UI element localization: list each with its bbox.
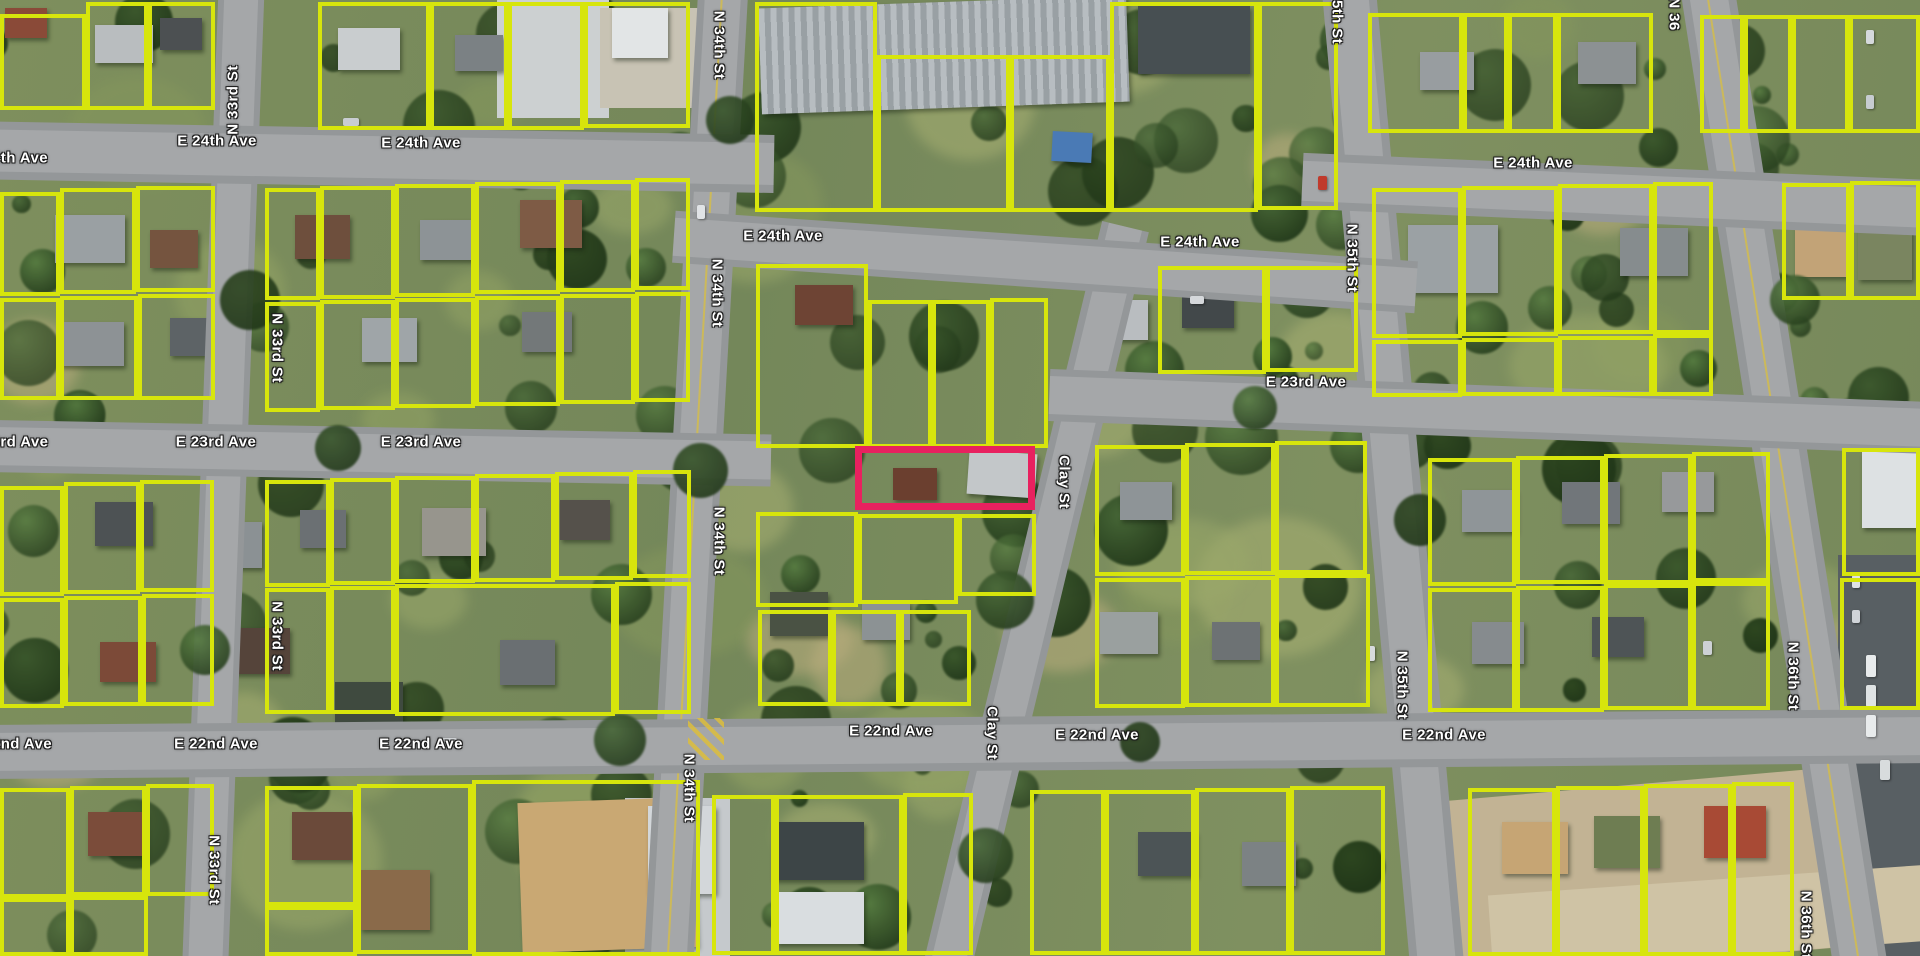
parcel-outline[interactable] [584, 2, 690, 128]
tree-canopy [1233, 386, 1277, 430]
parcel-outline[interactable] [330, 478, 395, 585]
parcel-outline[interactable] [1428, 458, 1516, 586]
parcel-outline[interactable] [1463, 13, 1508, 133]
street-label: N 34th St [711, 507, 728, 576]
street-label: N 36th St [1798, 891, 1815, 956]
parcel-outline[interactable] [560, 180, 635, 292]
street-label: 3rd Ave [0, 434, 48, 451]
parcel-outline[interactable] [1195, 788, 1290, 955]
street-label: E 24th Ave [177, 133, 257, 150]
tree-canopy [315, 425, 361, 471]
parcel-outline[interactable] [903, 793, 973, 955]
parcel-outline[interactable] [320, 186, 395, 299]
parcel-outline[interactable] [140, 480, 214, 592]
parcel-outline[interactable] [1557, 13, 1653, 133]
vehicle [697, 205, 705, 219]
parcel-outline[interactable] [1372, 188, 1462, 338]
street-label: N 34th St [711, 11, 728, 80]
parcel-outline[interactable] [1508, 13, 1557, 133]
parcel-outline[interactable] [395, 184, 475, 297]
parcel-outline[interactable] [265, 188, 320, 300]
parcel-outline[interactable] [1732, 782, 1794, 956]
parcel-outline[interactable] [1744, 15, 1792, 133]
parcel-outline[interactable] [475, 474, 555, 582]
parcel-outline[interactable] [712, 795, 775, 955]
parcel-outline[interactable] [1849, 15, 1920, 133]
parcel-outline[interactable] [1516, 456, 1604, 584]
parcel-outline[interactable] [958, 514, 1036, 596]
parcel-outline[interactable] [395, 476, 475, 583]
street-label: E 22nd Ave [379, 736, 463, 753]
parcel-outline[interactable] [265, 906, 357, 956]
parcel-outline[interactable] [475, 296, 560, 406]
parcel-outline[interactable] [932, 300, 990, 448]
parcel-outline[interactable] [1462, 186, 1558, 336]
parcel-outline[interactable] [265, 786, 357, 906]
parcel-outline[interactable] [1653, 182, 1713, 334]
street-label: E 24th Ave [1493, 155, 1573, 172]
parcel-outline[interactable] [0, 788, 70, 898]
parcel-outline[interactable] [633, 470, 691, 578]
parcel-outline[interactable] [1158, 266, 1266, 374]
parcel-outline[interactable] [1556, 786, 1644, 956]
parcel-outline[interactable] [142, 594, 214, 706]
parcel-outline[interactable] [0, 898, 70, 956]
parcel-outline[interactable] [635, 292, 690, 402]
parcel-outline[interactable] [0, 14, 86, 110]
parcel-outline[interactable] [1516, 586, 1604, 712]
parcel-outline[interactable] [1428, 588, 1516, 712]
selected-parcel-outline[interactable] [855, 446, 1035, 510]
parcel-outline[interactable] [60, 188, 136, 294]
parcel-outline[interactable] [1095, 578, 1185, 708]
parcel-outline[interactable] [1604, 454, 1692, 584]
parcel-outline[interactable] [1110, 2, 1258, 212]
parcel-outline[interactable] [1462, 338, 1558, 396]
street-label: N 34th St [681, 754, 698, 823]
street-label: E 24th Ave [381, 135, 461, 152]
parcel-outline[interactable] [0, 598, 64, 708]
parcel-outline[interactable] [1792, 15, 1849, 133]
parcel-outline[interactable] [615, 582, 691, 714]
parcel-outline[interactable] [1290, 786, 1385, 955]
parcel-outline[interactable] [475, 182, 560, 294]
parcel-outline[interactable] [1372, 340, 1462, 397]
parcel-outline[interactable] [64, 482, 140, 594]
parcel-outline[interactable] [1558, 184, 1653, 334]
street-label: E 23rd Ave [381, 434, 461, 451]
street-label: 5th St [1329, 0, 1346, 44]
parcel-outline[interactable] [775, 795, 903, 955]
parcel-outline[interactable] [877, 55, 1010, 212]
tree-canopy [594, 714, 646, 766]
parcel-outline[interactable] [64, 596, 142, 706]
road-surface [0, 716, 1920, 771]
parcel-outline[interactable] [146, 784, 214, 896]
parcel-outline[interactable] [0, 298, 60, 400]
parcel-outline[interactable] [1010, 55, 1110, 212]
vehicle [1866, 715, 1876, 737]
parcel-outline[interactable] [755, 2, 877, 212]
street-label: Clay St [1056, 455, 1073, 509]
street-label: N 33rd St [269, 313, 286, 382]
parcel-outline[interactable] [900, 610, 971, 706]
street-label: N 33rd St [269, 601, 286, 670]
street-label: E 22nd Ave [1402, 727, 1486, 744]
parcel-outline[interactable] [1850, 181, 1920, 300]
street-label: E 22nd Ave [849, 723, 933, 740]
parcel-outline[interactable] [1692, 582, 1770, 710]
parcel-outline[interactable] [756, 264, 868, 448]
parcel-outline[interactable] [0, 486, 64, 596]
parcel-outline[interactable] [1700, 15, 1744, 133]
parcel-outline[interactable] [70, 786, 146, 896]
parcel-outline[interactable] [1692, 452, 1770, 582]
parcel-outline[interactable] [0, 192, 60, 296]
parcel-outline[interactable] [1095, 445, 1185, 576]
parcel-outline[interactable] [395, 584, 615, 716]
parcel-outline[interactable] [1368, 13, 1463, 133]
street-label: E 24th Ave [1160, 234, 1240, 251]
street-label: E 23rd Ave [1266, 374, 1346, 391]
street-label: N 36 [1666, 0, 1683, 31]
street-label: E 22nd Ave [1055, 727, 1139, 744]
parcel-outline[interactable] [1782, 183, 1850, 300]
street-label: E 23rd Ave [176, 434, 256, 451]
parcel-outline[interactable] [832, 610, 900, 706]
parcel-outline[interactable] [758, 610, 832, 706]
parcel-outline[interactable] [1258, 2, 1338, 210]
parcel-outline[interactable] [1644, 784, 1732, 956]
parcel-outline[interactable] [1604, 584, 1692, 710]
parcel-outline[interactable] [265, 480, 330, 587]
street-label: N 33rd St [206, 835, 223, 904]
parcel-outline[interactable] [990, 298, 1048, 448]
parcel-outline[interactable] [1105, 790, 1195, 955]
tree-canopy [1639, 128, 1678, 167]
street-label: E 24th Ave [743, 228, 823, 245]
street-label: N 36th St [1785, 642, 1802, 711]
parcel-outline[interactable] [318, 2, 430, 130]
parcel-outline[interactable] [635, 178, 690, 290]
parcel-outline[interactable] [70, 896, 148, 956]
parcel-outline[interactable] [320, 300, 395, 410]
parcel-outline[interactable] [756, 512, 858, 607]
parcel-outline[interactable] [1468, 788, 1556, 956]
vehicle [1880, 760, 1890, 780]
parcel-outline[interactable] [357, 784, 472, 954]
parcel-outline[interactable] [395, 298, 475, 408]
parcel-outline[interactable] [508, 2, 584, 130]
parcel-outline[interactable] [430, 2, 508, 130]
parcel-outline[interactable] [136, 186, 215, 292]
street-label: N 35th St [1344, 224, 1361, 293]
street-label: N 33rd St [225, 65, 242, 134]
street-label: E 22nd Ave [174, 736, 258, 753]
street-label: N 34th St [709, 259, 726, 328]
parcel-outline[interactable] [472, 780, 700, 956]
parcel-outline[interactable] [138, 294, 215, 400]
parcel-outline[interactable] [1275, 441, 1367, 574]
parcel-outline[interactable] [1030, 790, 1105, 955]
parcel-outline[interactable] [1185, 576, 1275, 707]
street-label: 4th Ave [0, 150, 48, 167]
parcel-outline[interactable] [1275, 574, 1370, 707]
tree-canopy [706, 96, 754, 144]
parcel-outline[interactable] [1840, 578, 1920, 710]
parcel-outline[interactable] [60, 296, 138, 400]
parcel-outline[interactable] [858, 514, 958, 604]
parcel-outline[interactable] [1842, 448, 1920, 576]
street-label: 2nd Ave [0, 736, 52, 753]
parcel-outline[interactable] [148, 2, 215, 110]
parcel-outline[interactable] [86, 2, 148, 110]
parcel-outline[interactable] [1185, 443, 1275, 575]
parcel-outline[interactable] [868, 300, 932, 448]
parcel-outline[interactable] [1558, 336, 1653, 396]
street-label: N 35th St [1394, 651, 1411, 720]
map-canvas[interactable]: 4th AveE 24th AveE 24th AveE 24th AveE 2… [0, 0, 1920, 956]
street-label: Clay St [984, 706, 1001, 760]
parcel-outline[interactable] [1653, 334, 1713, 396]
parcel-outline[interactable] [330, 586, 395, 714]
parcel-outline[interactable] [555, 472, 633, 580]
parcel-outline[interactable] [560, 294, 635, 404]
